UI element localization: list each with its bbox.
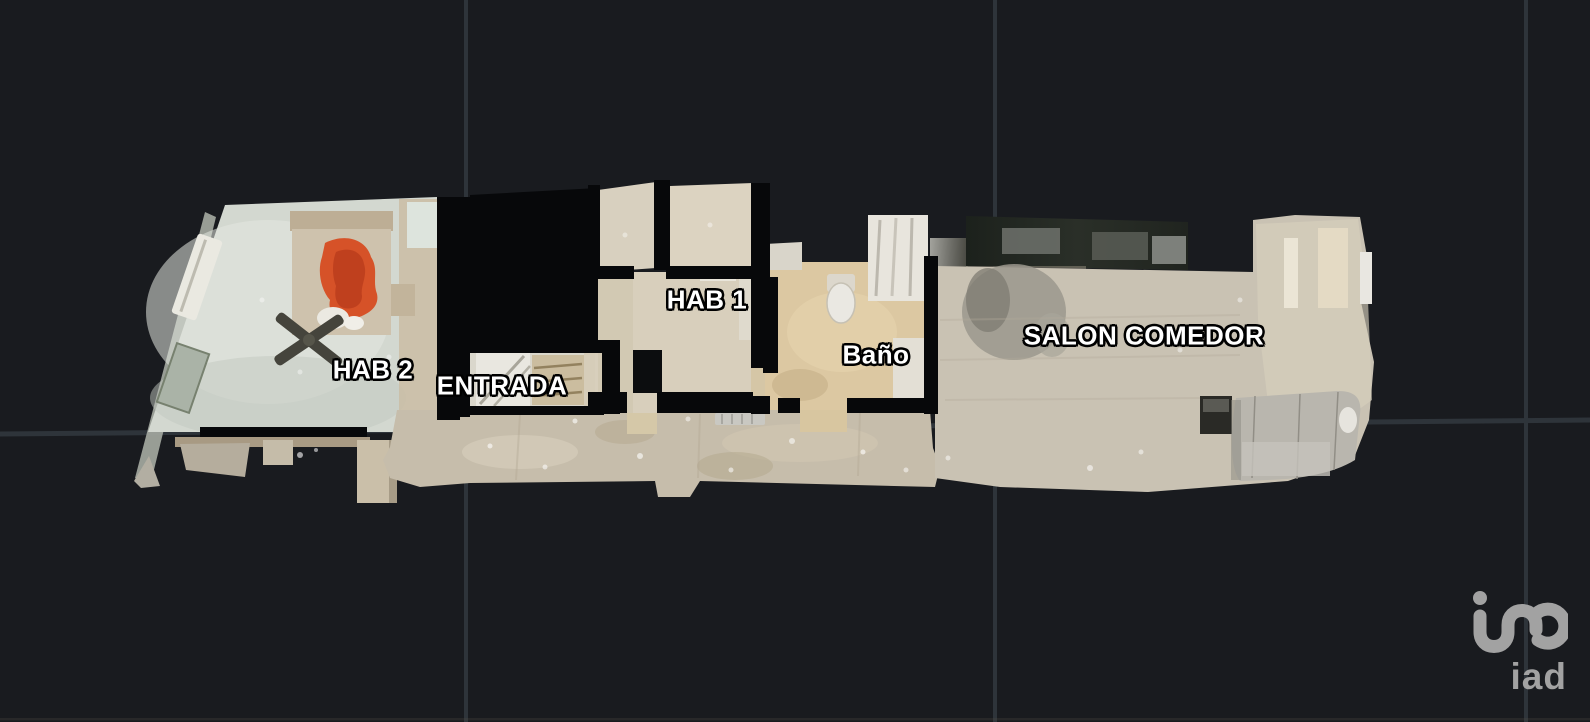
- room-label-entrada: ENTRADA: [437, 371, 568, 402]
- render-artifact-strip: [0, 718, 1590, 721]
- room-bano[interactable]: [765, 215, 930, 410]
- kitchen-sink: [1152, 236, 1186, 264]
- toilet: [827, 274, 855, 323]
- dollhouse-view[interactable]: HAB 2 ENTRADA HAB 1 Baño SALON COMEDOR i…: [0, 0, 1590, 722]
- scan-hole: [633, 350, 662, 393]
- room-label-bano: Baño: [843, 340, 910, 371]
- room-label-hab2: HAB 2: [333, 355, 414, 386]
- iad-logo-text: iad: [1464, 661, 1568, 692]
- floorplan-render: [0, 0, 1590, 722]
- hab2-bottom-wall: [175, 427, 397, 503]
- doormat: [715, 413, 765, 425]
- hab2-mirror: [407, 202, 437, 248]
- shower: [868, 215, 928, 301]
- iad-logo: iad: [1464, 590, 1568, 692]
- window-light: [1284, 238, 1298, 308]
- room-hab2[interactable]: [146, 197, 437, 440]
- room-label-salon: SALON COMEDOR: [1024, 321, 1265, 352]
- hab2-nightstand: [391, 284, 415, 316]
- iad-logo-icon: [1466, 590, 1568, 662]
- room-label-hab1: HAB 1: [667, 285, 748, 316]
